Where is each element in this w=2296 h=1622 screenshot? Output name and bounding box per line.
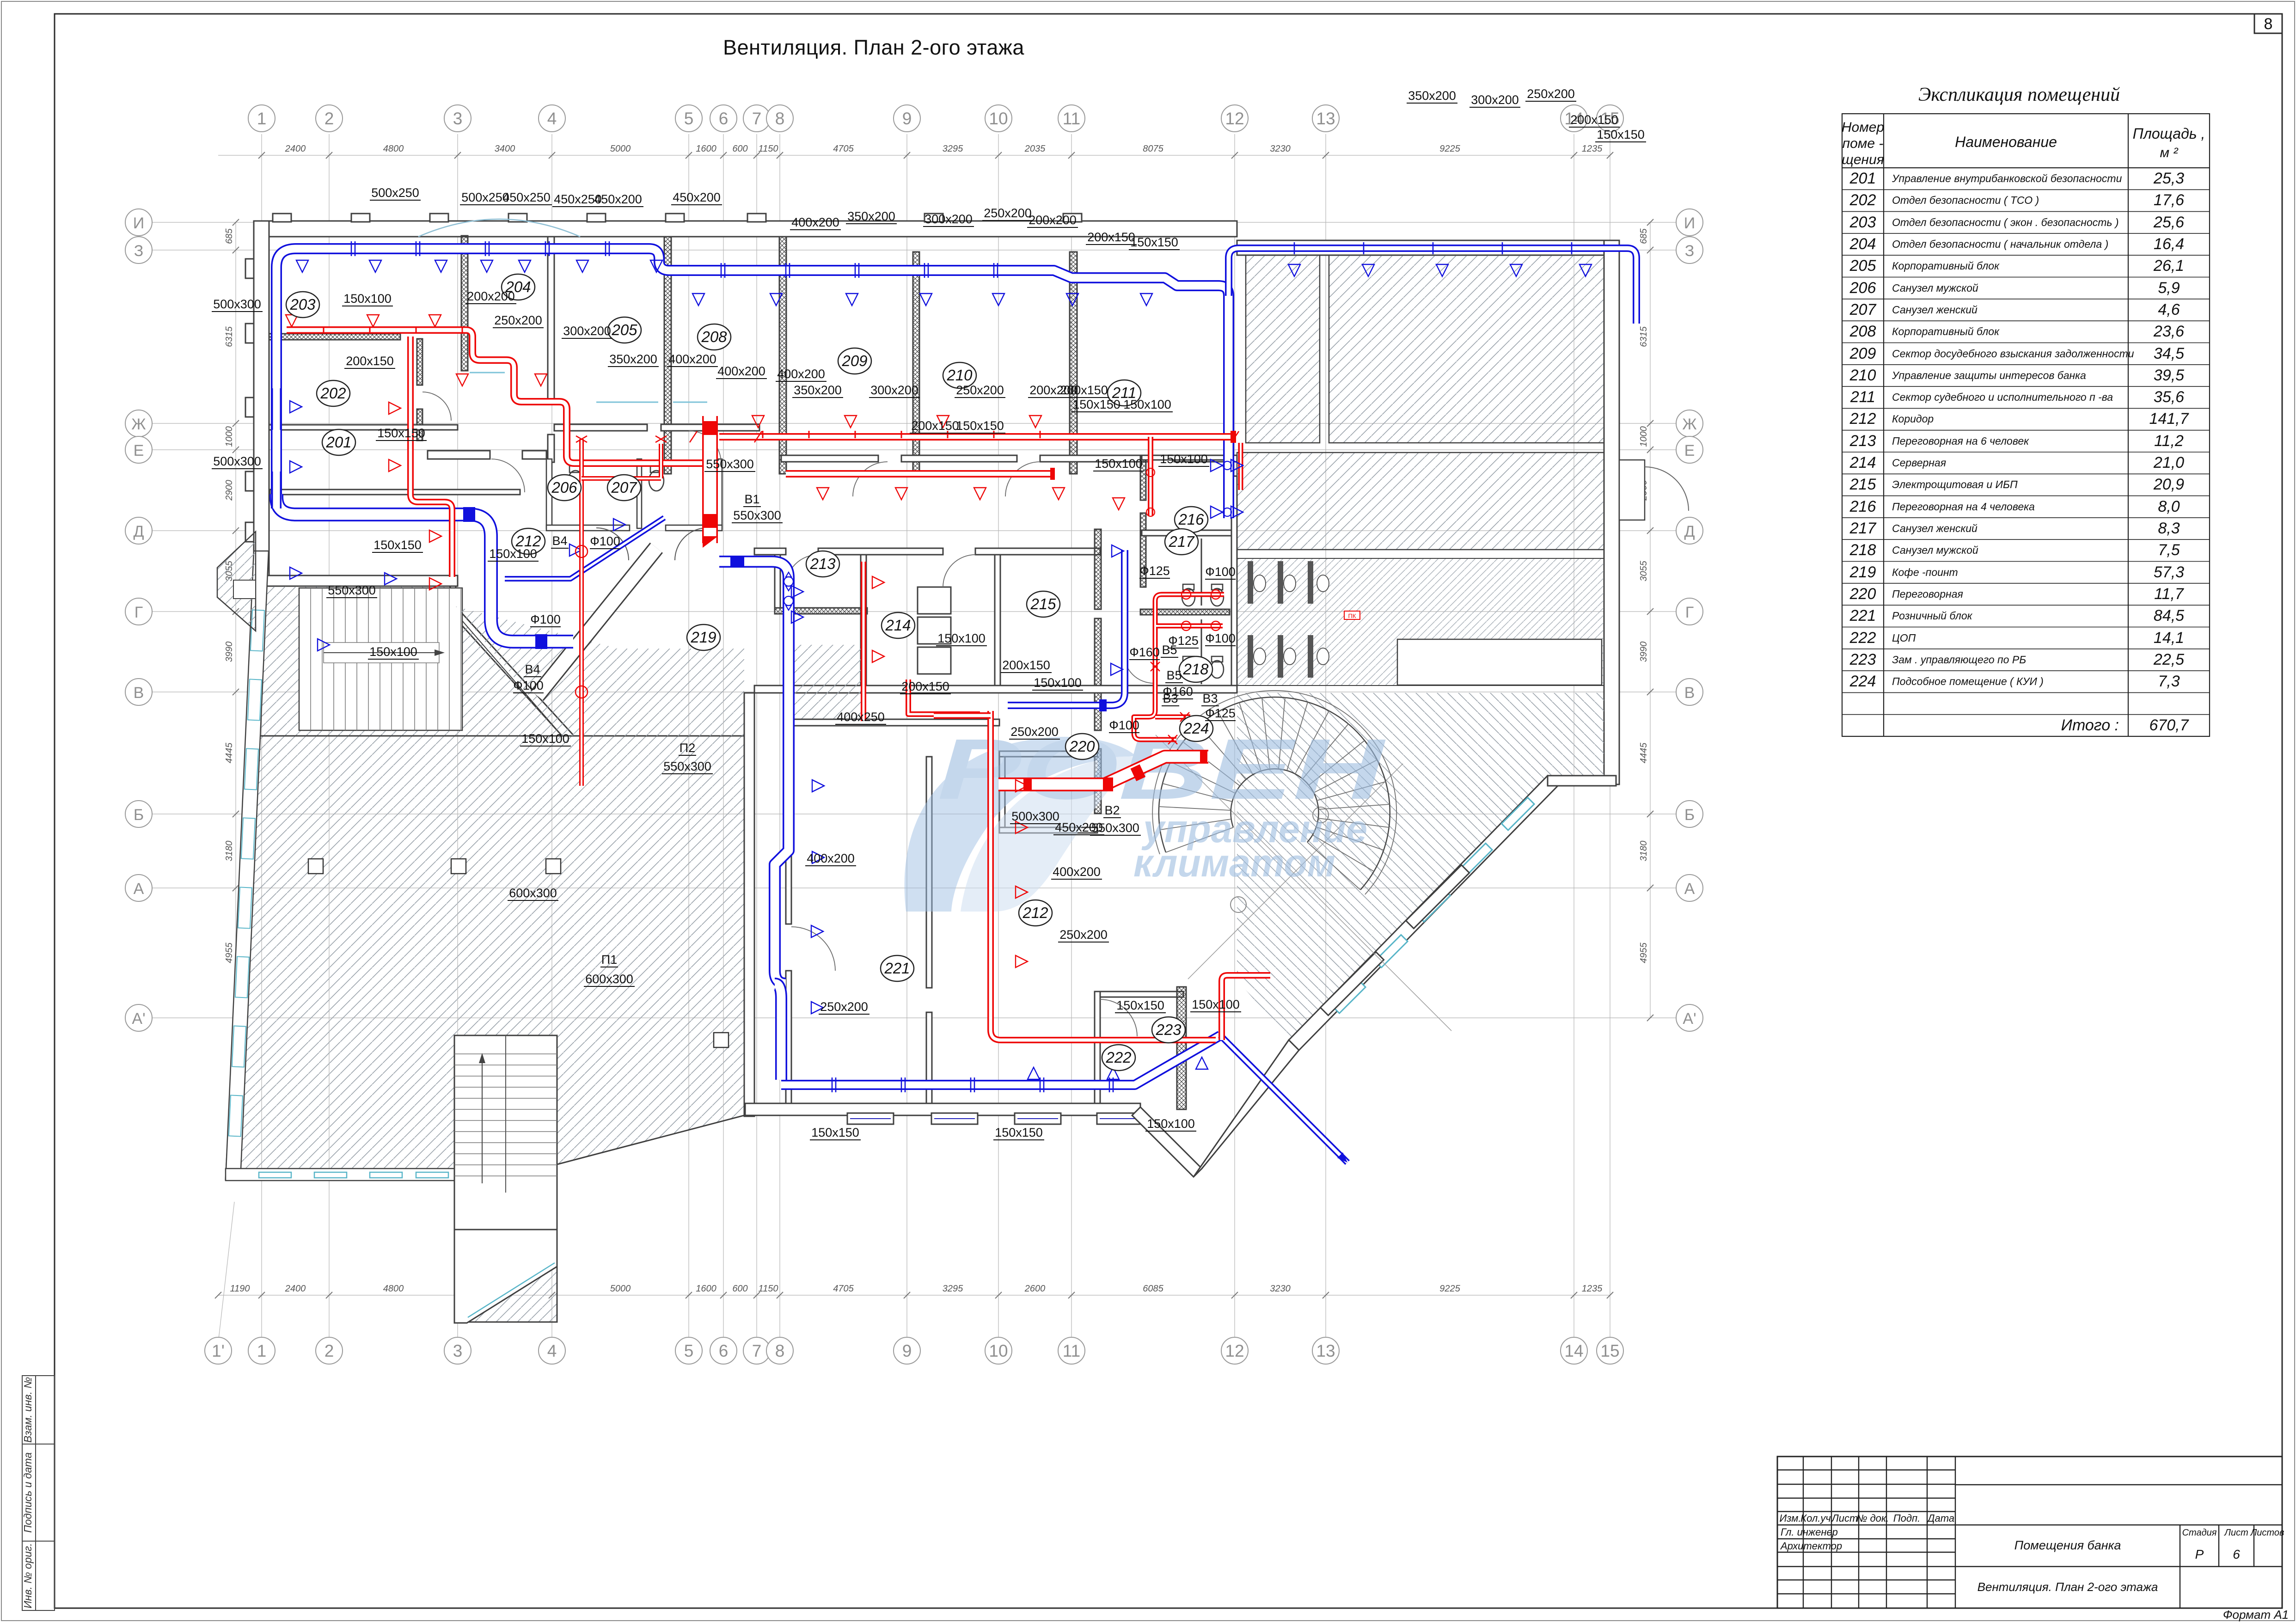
svg-text:500x250: 500x250 (371, 186, 419, 200)
svg-text:212: 212 (1849, 410, 1876, 428)
svg-text:Дата: Дата (1926, 1512, 1954, 1524)
svg-text:Ж: Ж (1682, 416, 1696, 433)
svg-text:4: 4 (547, 1341, 557, 1360)
svg-text:400x200: 400x200 (717, 364, 765, 378)
svg-text:Ф100: Ф100 (1205, 631, 1236, 645)
svg-text:16,4: 16,4 (2154, 235, 2184, 253)
svg-text:224: 224 (1849, 673, 1876, 690)
svg-text:7,5: 7,5 (2158, 541, 2180, 559)
svg-text:3180: 3180 (224, 841, 234, 862)
svg-text:Лист: Лист (1831, 1512, 1858, 1524)
svg-text:200x200: 200x200 (1029, 213, 1077, 227)
svg-text:Д: Д (1684, 523, 1695, 540)
svg-text:350x200: 350x200 (1408, 89, 1456, 103)
svg-text:208: 208 (701, 328, 727, 345)
svg-text:206: 206 (1849, 279, 1876, 297)
svg-text:РОВЕН: РОВЕН (937, 722, 1386, 817)
svg-text:3295: 3295 (943, 144, 963, 154)
svg-text:А': А' (132, 1010, 145, 1028)
svg-text:2: 2 (325, 109, 334, 128)
svg-text:219: 219 (1849, 563, 1876, 581)
svg-text:3990: 3990 (1639, 642, 1649, 662)
svg-text:В4: В4 (525, 662, 540, 676)
svg-text:150x150: 150x150 (1116, 998, 1164, 1012)
svg-text:Е: Е (134, 442, 144, 459)
svg-text:4800: 4800 (383, 144, 404, 154)
svg-text:Б: Б (1684, 806, 1695, 824)
svg-text:Корпоративный блок: Корпоративный блок (1892, 260, 2000, 272)
svg-text:22,5: 22,5 (2153, 651, 2184, 668)
svg-text:600x300: 600x300 (585, 972, 633, 986)
svg-text:Ф100: Ф100 (590, 534, 620, 548)
svg-text:Листов: Листов (2250, 1528, 2284, 1538)
svg-text:250x200: 250x200 (820, 1000, 868, 1014)
svg-text:Наименование: Наименование (1955, 134, 2057, 150)
svg-text:685: 685 (224, 228, 234, 244)
svg-text:210: 210 (946, 367, 973, 384)
svg-text:205: 205 (1849, 257, 1876, 275)
svg-text:1150: 1150 (758, 144, 778, 154)
svg-text:1000: 1000 (224, 426, 234, 447)
svg-text:200x150: 200x150 (1570, 113, 1618, 127)
svg-text:ПК: ПК (1348, 612, 1356, 619)
svg-text:6: 6 (719, 109, 729, 128)
svg-text:Санузел женский: Санузел женский (1892, 522, 1978, 534)
svg-text:450x200: 450x200 (673, 190, 721, 204)
svg-text:Подп.: Подп. (1893, 1512, 1921, 1524)
svg-text:Санузел мужской: Санузел мужской (1892, 544, 1978, 556)
svg-text:Г: Г (135, 604, 143, 621)
svg-text:1150: 1150 (758, 1284, 778, 1294)
svg-text:Ф100: Ф100 (1205, 565, 1236, 579)
svg-text:Сектор досудебного взыскания з: Сектор досудебного взыскания задолженнос… (1892, 348, 2134, 360)
svg-text:Изм.: Изм. (1780, 1512, 1801, 1524)
svg-text:150x150: 150x150 (377, 426, 425, 440)
svg-text:1600: 1600 (696, 1284, 716, 1294)
svg-text:450x200: 450x200 (594, 192, 642, 206)
svg-text:150x100: 150x100 (369, 645, 417, 659)
svg-text:400x250: 400x250 (837, 710, 885, 724)
svg-text:Взам. инв. №: Взам. инв. № (22, 1377, 34, 1443)
svg-text:207: 207 (1849, 301, 1877, 318)
svg-text:3: 3 (453, 109, 463, 128)
svg-text:141,7: 141,7 (2149, 410, 2189, 428)
svg-text:150x100: 150x100 (343, 292, 392, 306)
svg-text:5,9: 5,9 (2158, 279, 2180, 297)
svg-text:12: 12 (1225, 1341, 1244, 1360)
svg-text:500x300: 500x300 (213, 454, 261, 468)
svg-text:250x200: 250x200 (1059, 928, 1108, 942)
svg-text:209: 209 (1849, 345, 1876, 362)
svg-text:1235: 1235 (1582, 1284, 1603, 1294)
svg-text:200x150: 200x150 (911, 419, 959, 433)
svg-text:350x200: 350x200 (847, 209, 895, 223)
svg-text:А: А (134, 880, 144, 898)
svg-text:8075: 8075 (1143, 144, 1163, 154)
svg-text:12: 12 (1225, 109, 1244, 128)
svg-text:450x200: 450x200 (1055, 820, 1103, 834)
svg-text:5000: 5000 (610, 144, 631, 154)
svg-text:Ф100: Ф100 (513, 679, 544, 692)
svg-text:Отдел безопасности ( экон . б: Отдел безопасности ( экон . безопасность… (1892, 216, 2119, 228)
svg-text:3: 3 (453, 1341, 463, 1360)
svg-text:150x100: 150x100 (489, 547, 537, 561)
svg-text:218: 218 (1849, 541, 1876, 559)
svg-text:1190: 1190 (230, 1284, 250, 1294)
svg-text:14,1: 14,1 (2154, 629, 2184, 647)
svg-text:Подсобное помещение ( КУИ ): Подсобное помещение ( КУИ ) (1892, 675, 2044, 687)
svg-text:9: 9 (902, 109, 912, 128)
svg-text:И: И (1684, 214, 1695, 232)
svg-text:220: 220 (1069, 738, 1095, 755)
svg-text:250x200: 250x200 (956, 383, 1004, 397)
svg-text:150x100: 150x100 (1034, 676, 1082, 690)
svg-text:220: 220 (1849, 585, 1876, 603)
svg-text:150x100: 150x100 (1160, 452, 1208, 466)
svg-text:207: 207 (611, 479, 637, 496)
svg-text:202: 202 (320, 385, 346, 402)
svg-text:Б: Б (134, 806, 144, 824)
svg-text:150x150: 150x150 (373, 538, 422, 552)
svg-text:Управление защиты интересов ба: Управление защиты интересов банка (1892, 369, 2086, 381)
svg-text:1000: 1000 (1639, 426, 1649, 447)
svg-text:5: 5 (684, 109, 694, 128)
svg-text:222: 222 (1849, 629, 1876, 647)
svg-text:13: 13 (1316, 1341, 1335, 1360)
svg-text:Зам . управляющего по РБ: Зам . управляющего по РБ (1892, 654, 2026, 666)
svg-text:8,3: 8,3 (2158, 520, 2180, 537)
svg-text:217: 217 (1849, 520, 1877, 537)
svg-text:П1: П1 (601, 953, 617, 967)
svg-text:3990: 3990 (224, 642, 234, 662)
svg-text:600: 600 (732, 1284, 747, 1294)
svg-text:Электрощитовая и ИБП: Электрощитовая и ИБП (1892, 478, 2018, 490)
svg-text:1600: 1600 (696, 144, 716, 154)
svg-text:200x150: 200x150 (1087, 230, 1135, 244)
svg-text:500x300: 500x300 (1011, 809, 1059, 823)
svg-text:204: 204 (1849, 235, 1876, 253)
svg-text:3230: 3230 (1270, 1284, 1291, 1294)
svg-text:25,6: 25,6 (2153, 214, 2184, 231)
svg-text:З: З (1685, 242, 1695, 260)
svg-text:8: 8 (2264, 15, 2273, 33)
svg-text:Переговорная: Переговорная (1892, 588, 1963, 600)
svg-text:400x200: 400x200 (777, 367, 825, 381)
svg-text:З: З (134, 242, 144, 260)
svg-text:В5: В5 (1162, 643, 1177, 657)
svg-text:4705: 4705 (833, 1284, 854, 1294)
svg-text:2400: 2400 (285, 1284, 306, 1294)
svg-text:350x200: 350x200 (609, 352, 657, 366)
svg-text:34,5: 34,5 (2154, 345, 2184, 362)
svg-text:150x100: 150x100 (937, 631, 986, 645)
svg-text:Ф125: Ф125 (1205, 706, 1236, 720)
svg-text:150x150: 150x150 (1597, 128, 1645, 141)
svg-text:215: 215 (1849, 476, 1876, 493)
svg-text:3180: 3180 (1639, 841, 1649, 862)
svg-text:Г: Г (1685, 604, 1694, 621)
svg-text:3055: 3055 (1639, 560, 1649, 581)
svg-text:39,5: 39,5 (2154, 367, 2184, 384)
svg-text:4705: 4705 (833, 144, 854, 154)
svg-text:400x200: 400x200 (791, 215, 839, 229)
svg-text:щения: щения (1842, 152, 1884, 167)
svg-text:Управление внутрибанковской бе: Управление внутрибанковской безопасности (1892, 172, 2122, 184)
svg-text:500x300: 500x300 (213, 297, 261, 311)
svg-text:А: А (1684, 880, 1695, 898)
svg-text:210: 210 (1849, 367, 1876, 384)
svg-text:Ж: Ж (131, 416, 146, 433)
svg-text:84,5: 84,5 (2154, 607, 2184, 624)
svg-text:А': А' (1683, 1010, 1696, 1028)
svg-text:221: 221 (884, 960, 910, 977)
svg-text:201: 201 (1849, 170, 1876, 187)
svg-text:В3: В3 (1202, 692, 1218, 705)
svg-text:150x100: 150x100 (1147, 1117, 1195, 1131)
svg-text:Отдел безопасности ( начальни: Отдел безопасности ( начальник отдела ) (1892, 238, 2108, 250)
svg-text:300x200: 300x200 (870, 383, 918, 397)
svg-text:200x150: 200x150 (1002, 658, 1050, 672)
svg-text:150x150: 150x150 (811, 1126, 859, 1139)
svg-text:3230: 3230 (1270, 144, 1291, 154)
svg-text:1: 1 (257, 109, 267, 128)
svg-text:150x150: 150x150 (1130, 235, 1178, 249)
svg-text:5: 5 (684, 1341, 694, 1360)
svg-text:216: 216 (1178, 511, 1204, 528)
svg-text:5000: 5000 (610, 1284, 631, 1294)
svg-text:2600: 2600 (1024, 1284, 1046, 1294)
svg-text:Ф125: Ф125 (1139, 564, 1170, 578)
svg-text:150x150: 150x150 (1072, 398, 1120, 411)
svg-text:Р: Р (2195, 1547, 2204, 1561)
svg-text:10: 10 (989, 1341, 1008, 1360)
svg-text:13: 13 (1316, 109, 1335, 128)
svg-text:150x150: 150x150 (956, 419, 1004, 433)
svg-text:10: 10 (989, 109, 1008, 128)
svg-text:Инв. № ориг.: Инв. № ориг. (22, 1543, 34, 1608)
svg-text:550x300: 550x300 (328, 583, 376, 597)
svg-text:21,0: 21,0 (2153, 454, 2184, 471)
svg-text:Лист: Лист (2223, 1528, 2248, 1538)
svg-text:215: 215 (1030, 595, 1056, 612)
svg-text:600: 600 (732, 144, 747, 154)
svg-text:8: 8 (775, 109, 785, 128)
svg-text:4955: 4955 (1639, 942, 1649, 963)
svg-text:250x200: 250x200 (1010, 725, 1059, 739)
svg-text:4445: 4445 (224, 742, 234, 763)
svg-text:7,3: 7,3 (2158, 673, 2180, 690)
svg-text:4: 4 (547, 109, 557, 128)
svg-text:В5: В5 (1166, 668, 1182, 682)
svg-text:П2: П2 (680, 741, 695, 755)
svg-text:35,6: 35,6 (2154, 388, 2184, 406)
svg-text:8: 8 (775, 1341, 785, 1360)
svg-text:15: 15 (1600, 1341, 1619, 1360)
svg-text:222: 222 (1105, 1049, 1131, 1066)
svg-text:4,6: 4,6 (2158, 301, 2180, 318)
svg-text:212: 212 (1022, 904, 1048, 921)
svg-text:поме -: поме - (1843, 136, 1884, 151)
svg-text:Коридор: Коридор (1892, 413, 1934, 425)
svg-text:685: 685 (1639, 228, 1649, 244)
svg-text:221: 221 (1849, 607, 1876, 624)
svg-text:Е: Е (1684, 442, 1695, 459)
svg-text:2035: 2035 (1024, 144, 1046, 154)
svg-text:250x200: 250x200 (1527, 87, 1575, 101)
svg-text:Экспликация помещений: Экспликация помещений (1918, 84, 2120, 105)
svg-text:6: 6 (719, 1341, 729, 1360)
svg-text:400x200: 400x200 (668, 352, 716, 366)
svg-text:Кол.уч.: Кол.уч. (1800, 1512, 1834, 1524)
svg-text:Подпись и дата: Подпись и дата (22, 1452, 34, 1533)
svg-text:150x100: 150x100 (1095, 457, 1143, 471)
svg-text:217: 217 (1168, 533, 1195, 550)
svg-text:Помещения банка: Помещения банка (2014, 1538, 2121, 1552)
svg-text:2: 2 (325, 1341, 334, 1360)
svg-text:300x200: 300x200 (1471, 93, 1519, 107)
svg-text:150x150: 150x150 (995, 1126, 1043, 1139)
svg-text:Стадия: Стадия (2182, 1528, 2217, 1538)
svg-text:218: 218 (1182, 661, 1209, 678)
svg-text:223: 223 (1849, 651, 1876, 668)
svg-text:3400: 3400 (495, 144, 515, 154)
svg-text:1: 1 (257, 1341, 267, 1360)
svg-text:В1: В1 (744, 492, 759, 506)
svg-text:Санузел мужской: Санузел мужской (1892, 282, 1978, 294)
svg-text:Отдел безопасности ( ТСО ): Отдел безопасности ( ТСО ) (1892, 194, 2039, 206)
svg-text:213: 213 (809, 555, 836, 572)
svg-text:14: 14 (1564, 1341, 1583, 1360)
svg-text:400x200: 400x200 (807, 851, 855, 865)
svg-text:Ф100: Ф100 (1109, 718, 1139, 732)
svg-text:климатом: климатом (1133, 841, 1335, 885)
svg-text:Площадь ,: Площадь , (2133, 125, 2205, 142)
svg-text:В2: В2 (1104, 803, 1120, 817)
svg-text:Переговорная на 4 человека: Переговорная на 4 человека (1892, 501, 2035, 513)
svg-text:211: 211 (1850, 388, 1875, 406)
svg-text:223: 223 (1155, 1021, 1182, 1038)
svg-text:214: 214 (1849, 454, 1876, 471)
svg-text:203: 203 (289, 296, 316, 313)
svg-text:Переговорная на 6 человек: Переговорная на 6 человек (1892, 435, 2029, 447)
svg-text:Формат А1: Формат А1 (2223, 1608, 2289, 1622)
svg-text:Вентиляция. План 2-ого этажа: Вентиляция. План 2-ого этажа (1978, 1580, 2158, 1594)
svg-text:м ²: м ² (2160, 145, 2179, 160)
svg-text:26,1: 26,1 (2153, 257, 2184, 275)
svg-text:25,3: 25,3 (2153, 170, 2184, 187)
svg-text:В4: В4 (552, 534, 567, 548)
svg-text:11: 11 (1063, 109, 1080, 128)
svg-text:400x200: 400x200 (1053, 865, 1101, 879)
svg-text:Номер: Номер (1842, 120, 1884, 135)
svg-text:206: 206 (551, 479, 577, 496)
svg-text:И: И (133, 214, 144, 232)
svg-text:200x150: 200x150 (1060, 383, 1108, 397)
svg-text:200x200: 200x200 (467, 289, 515, 303)
svg-text:150x100: 150x100 (521, 732, 569, 746)
svg-text:205: 205 (611, 321, 637, 338)
svg-text:300x200: 300x200 (925, 212, 973, 226)
svg-text:9225: 9225 (1439, 144, 1460, 154)
svg-text:17,6: 17,6 (2154, 191, 2184, 209)
svg-text:209: 209 (841, 352, 867, 369)
svg-text:Архитектор: Архитектор (1780, 1540, 1842, 1552)
svg-text:250x200: 250x200 (984, 206, 1032, 220)
svg-text:550x300: 550x300 (706, 457, 754, 471)
svg-text:23,6: 23,6 (2153, 323, 2184, 340)
svg-text:Корпоративный блок: Корпоративный блок (1892, 325, 2000, 337)
svg-text:2400: 2400 (285, 144, 306, 154)
svg-text:Санузел женский: Санузел женский (1892, 304, 1978, 316)
svg-text:6315: 6315 (1639, 326, 1649, 347)
svg-text:Итого :: Итого : (2061, 716, 2119, 734)
svg-text:Ф160: Ф160 (1129, 645, 1160, 659)
svg-text:11,2: 11,2 (2154, 432, 2184, 450)
svg-text:214: 214 (885, 617, 911, 634)
svg-text:150x100: 150x100 (1123, 398, 1171, 411)
svg-text:Сектор судебного и исполнитель: Сектор судебного и исполнительного п -ва (1892, 391, 2113, 403)
svg-text:4445: 4445 (1639, 742, 1649, 763)
svg-text:6315: 6315 (224, 326, 234, 347)
svg-text:В3: В3 (1163, 692, 1178, 705)
svg-text:6: 6 (2233, 1547, 2240, 1561)
svg-text:4955: 4955 (224, 942, 234, 963)
svg-text:216: 216 (1849, 498, 1876, 515)
svg-text:4800: 4800 (383, 1284, 404, 1294)
svg-text:3295: 3295 (943, 1284, 963, 1294)
svg-text:9225: 9225 (1439, 1284, 1460, 1294)
svg-text:57,3: 57,3 (2154, 563, 2184, 581)
svg-text:2900: 2900 (224, 480, 234, 501)
svg-text:213: 213 (1849, 432, 1876, 450)
svg-text:300x200: 300x200 (563, 324, 611, 338)
svg-text:Д: Д (133, 523, 144, 540)
svg-text:202: 202 (1849, 191, 1876, 209)
svg-text:№ док.: № док. (1856, 1512, 1889, 1524)
svg-text:Гл. инженер: Гл. инженер (1781, 1526, 1838, 1538)
svg-text:20,9: 20,9 (2153, 476, 2184, 493)
svg-text:В: В (134, 684, 144, 702)
svg-text:ЦОП: ЦОП (1892, 632, 1916, 644)
svg-text:Серверная: Серверная (1892, 457, 1946, 469)
svg-text:7: 7 (752, 109, 762, 128)
svg-text:В: В (1684, 684, 1695, 702)
svg-text:11: 11 (1063, 1341, 1080, 1360)
svg-text:8,0: 8,0 (2158, 498, 2180, 515)
svg-text:203: 203 (1849, 214, 1876, 231)
svg-text:200x150: 200x150 (901, 679, 949, 693)
svg-text:600x300: 600x300 (509, 886, 557, 900)
svg-text:550x300: 550x300 (733, 508, 781, 522)
svg-text:9: 9 (902, 1341, 912, 1360)
svg-text:208: 208 (1849, 323, 1876, 340)
svg-text:350x200: 350x200 (794, 383, 842, 397)
svg-text:450x250: 450x250 (502, 190, 551, 204)
svg-text:150x100: 150x100 (1192, 998, 1240, 1011)
svg-text:224: 224 (1183, 720, 1209, 737)
svg-text:Кофе -поинт: Кофе -поинт (1892, 566, 1958, 578)
svg-text:11,7: 11,7 (2154, 585, 2184, 603)
svg-text:Ф100: Ф100 (530, 612, 561, 626)
svg-text:Розничный блок: Розничный блок (1892, 610, 1973, 622)
svg-text:1235: 1235 (1582, 144, 1603, 154)
svg-text:250x200: 250x200 (494, 313, 542, 327)
svg-text:200x150: 200x150 (346, 354, 394, 368)
svg-text:1': 1' (212, 1341, 225, 1360)
svg-text:7: 7 (752, 1341, 762, 1360)
svg-text:550x300: 550x300 (663, 759, 711, 773)
svg-text:219: 219 (690, 629, 716, 646)
